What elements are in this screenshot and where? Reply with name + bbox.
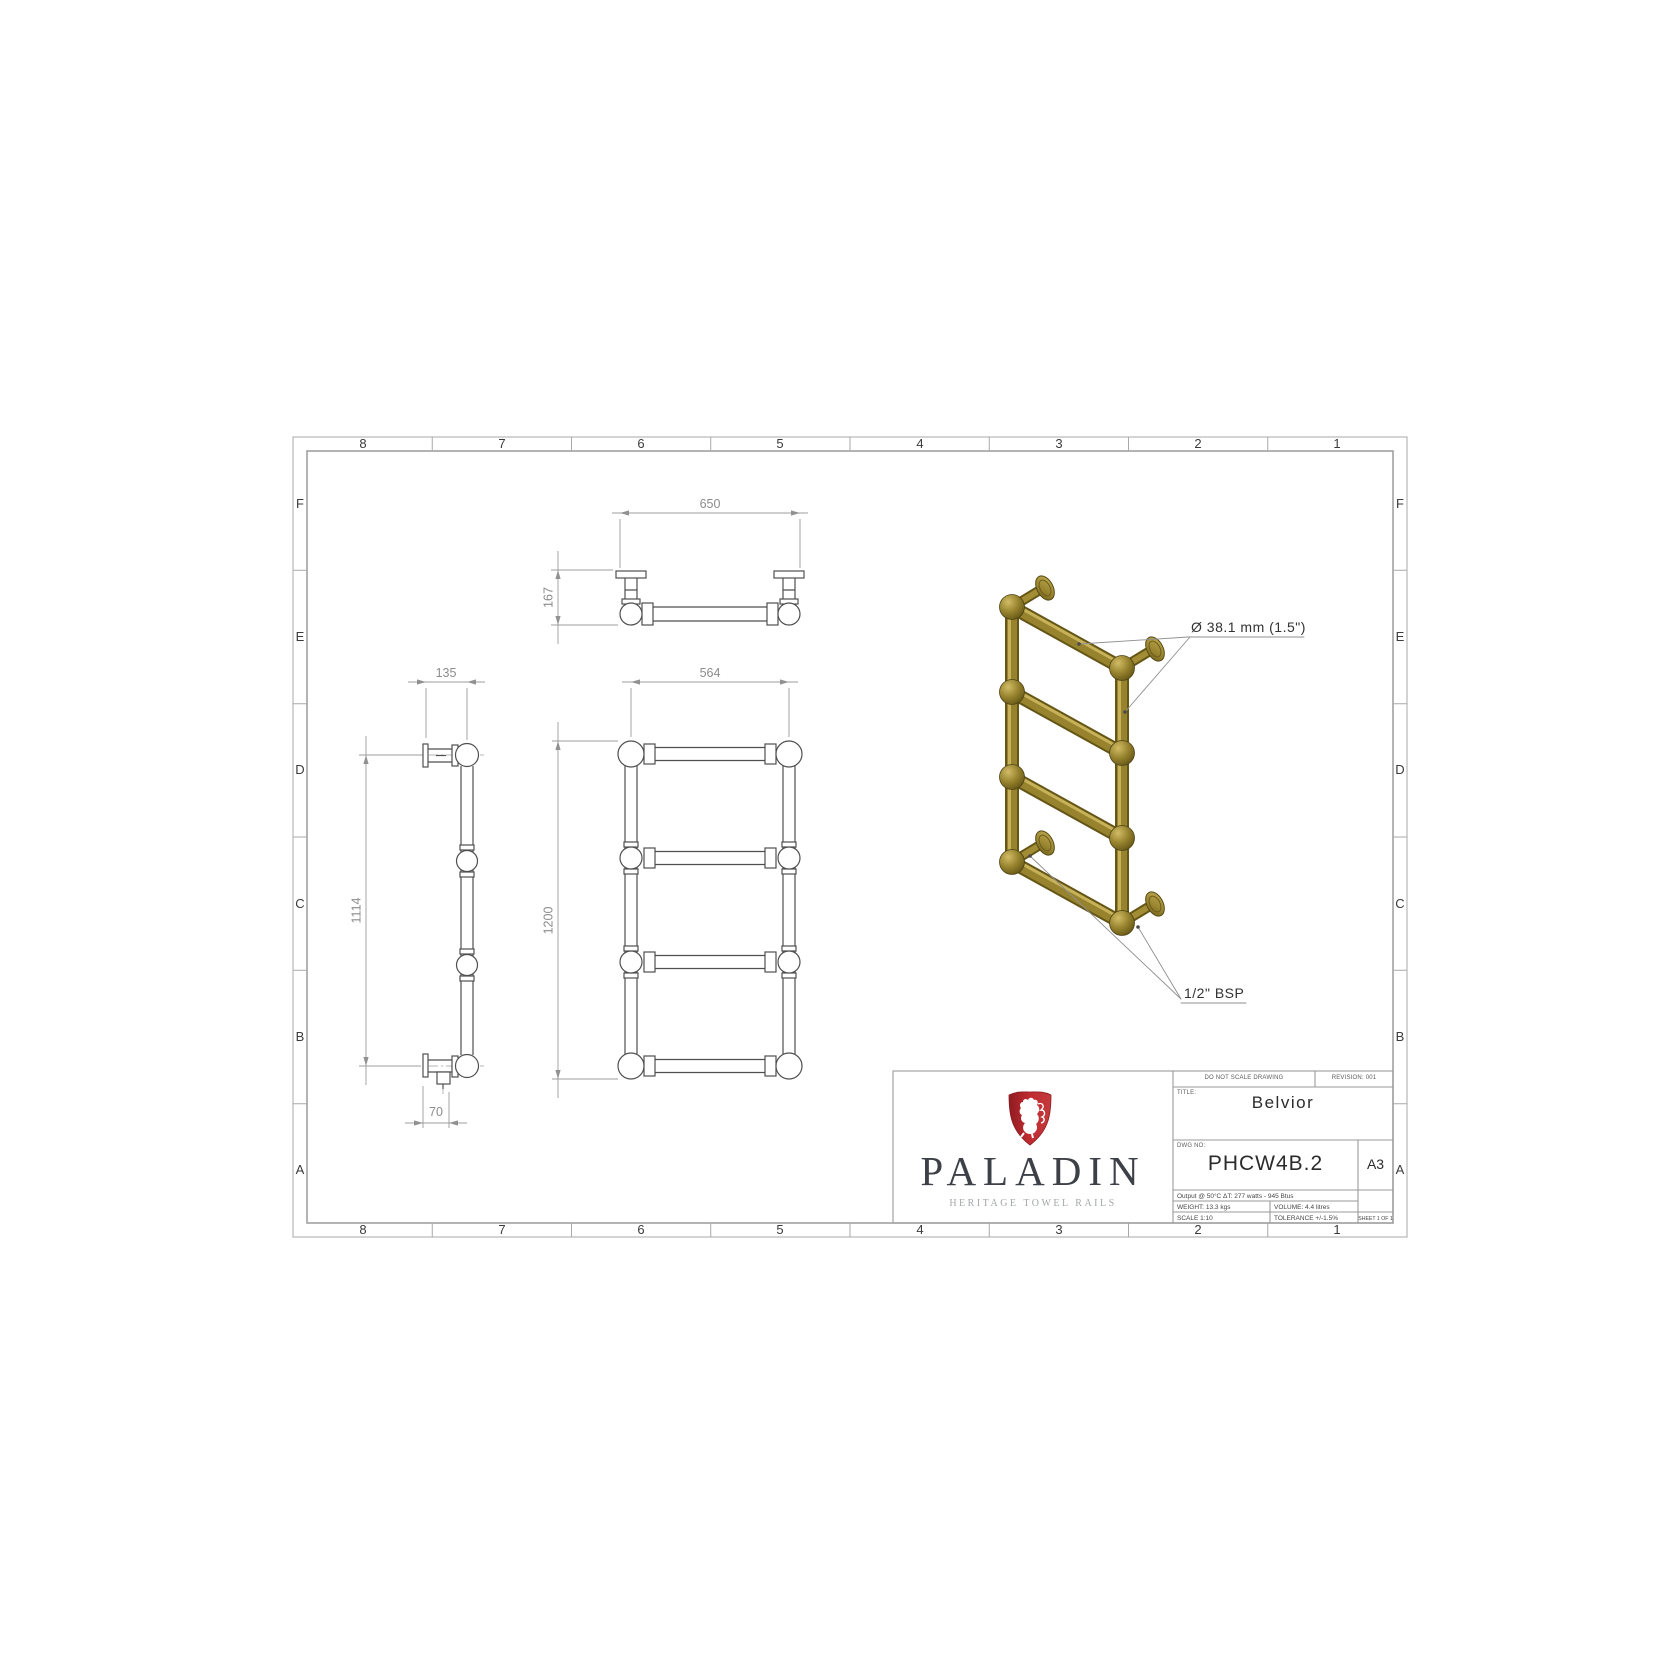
grid-ticks <box>293 437 1407 1237</box>
grid-row-label: A <box>291 1163 309 1177</box>
front-part <box>618 741 802 1079</box>
dim-side-height: 1114 <box>350 889 365 933</box>
grid-col-label: 6 <box>626 437 656 451</box>
grid-col-label: 3 <box>1044 1223 1074 1237</box>
dim-plan-width: 650 <box>688 497 732 512</box>
grid-col-label: 1 <box>1322 437 1352 451</box>
annotation-tube-diameter: Ø 38.1 mm (1.5") <box>1191 620 1306 635</box>
sheet-frame <box>293 437 1407 1237</box>
weight-spec: WEIGHT: 13.3 kgs <box>1177 1204 1230 1212</box>
grid-col-label: 5 <box>765 1223 795 1237</box>
grid-col-label: 5 <box>765 437 795 451</box>
dim-side-bottom: 70 <box>414 1105 458 1120</box>
grid-row-label: C <box>291 897 309 911</box>
grid-row-label: E <box>291 630 309 644</box>
front-view <box>552 679 802 1098</box>
dim-plan-depth: 167 <box>542 576 557 620</box>
grid-row-label: C <box>1391 897 1409 911</box>
side-view <box>359 679 485 1128</box>
plan-part <box>616 571 804 625</box>
grid-col-label: 7 <box>487 1223 517 1237</box>
grid-col-label: 8 <box>348 1223 378 1237</box>
grid-col-label: 6 <box>626 1223 656 1237</box>
dim-front-height: 1200 <box>542 899 557 943</box>
grid-col-label: 1 <box>1322 1223 1352 1237</box>
grid-col-label: 4 <box>905 437 935 451</box>
grid-row-label: A <box>1391 1163 1409 1177</box>
grid-row-label: F <box>291 497 309 511</box>
plan-view <box>551 510 808 644</box>
grid-col-label: 2 <box>1183 1223 1213 1237</box>
side-part <box>423 744 479 1090</box>
volume-spec: VOLUME: 4.4 litres <box>1274 1204 1330 1212</box>
grid-row-label: D <box>1391 763 1409 777</box>
grid-col-label: 4 <box>905 1223 935 1237</box>
leader-lines <box>1030 637 1304 1003</box>
scale-spec: SCALE 1:10 <box>1177 1215 1213 1223</box>
grid-row-label: F <box>1391 497 1409 511</box>
sheet-count: SHEET 1 OF 1 <box>1358 1215 1393 1223</box>
paper-size: A3 <box>1358 1156 1393 1172</box>
grid-col-label: 7 <box>487 437 517 451</box>
grid-row-label: E <box>1391 630 1409 644</box>
revision-label: REVISION: 001 <box>1315 1075 1393 1082</box>
dim-side-offset: 135 <box>424 666 468 681</box>
drawing-sheet: 8 7 6 5 4 3 2 1 8 7 6 5 4 3 2 1 F E D C … <box>0 0 1676 1676</box>
grid-col-label: 3 <box>1044 437 1074 451</box>
grid-row-label: D <box>291 763 309 777</box>
paladin-shield-icon <box>1009 1092 1051 1145</box>
plan-dim-167-lines <box>551 551 618 644</box>
brand-name: PALADIN <box>903 1150 1163 1192</box>
grid-row-label: B <box>1391 1030 1409 1044</box>
dim-front-width: 564 <box>688 666 732 681</box>
annotation-connection: 1/2" BSP <box>1184 986 1244 1001</box>
plan-dim-650-lines <box>612 513 808 568</box>
grid-col-label: 2 <box>1183 437 1213 451</box>
iso-view <box>1000 573 1305 1003</box>
grid-col-label: 8 <box>348 437 378 451</box>
do-not-scale-note: DO NOT SCALE DRAWING <box>1173 1075 1315 1082</box>
grid-row-label: B <box>291 1030 309 1044</box>
drawing-title: Belvior <box>1173 1093 1393 1113</box>
drawing-lineart <box>0 0 1676 1676</box>
dwg-no-value: PHCW4B.2 <box>1173 1152 1358 1176</box>
output-spec: Output @ 50°C ΔT: 277 watts - 945 Btus <box>1177 1193 1294 1201</box>
brand-tagline: HERITAGE TOWEL RAILS <box>903 1198 1163 1210</box>
dwg-no-label: DWG NO: <box>1177 1143 1205 1150</box>
tolerance-spec: TOLERANCE +/-1.5% <box>1274 1215 1338 1223</box>
